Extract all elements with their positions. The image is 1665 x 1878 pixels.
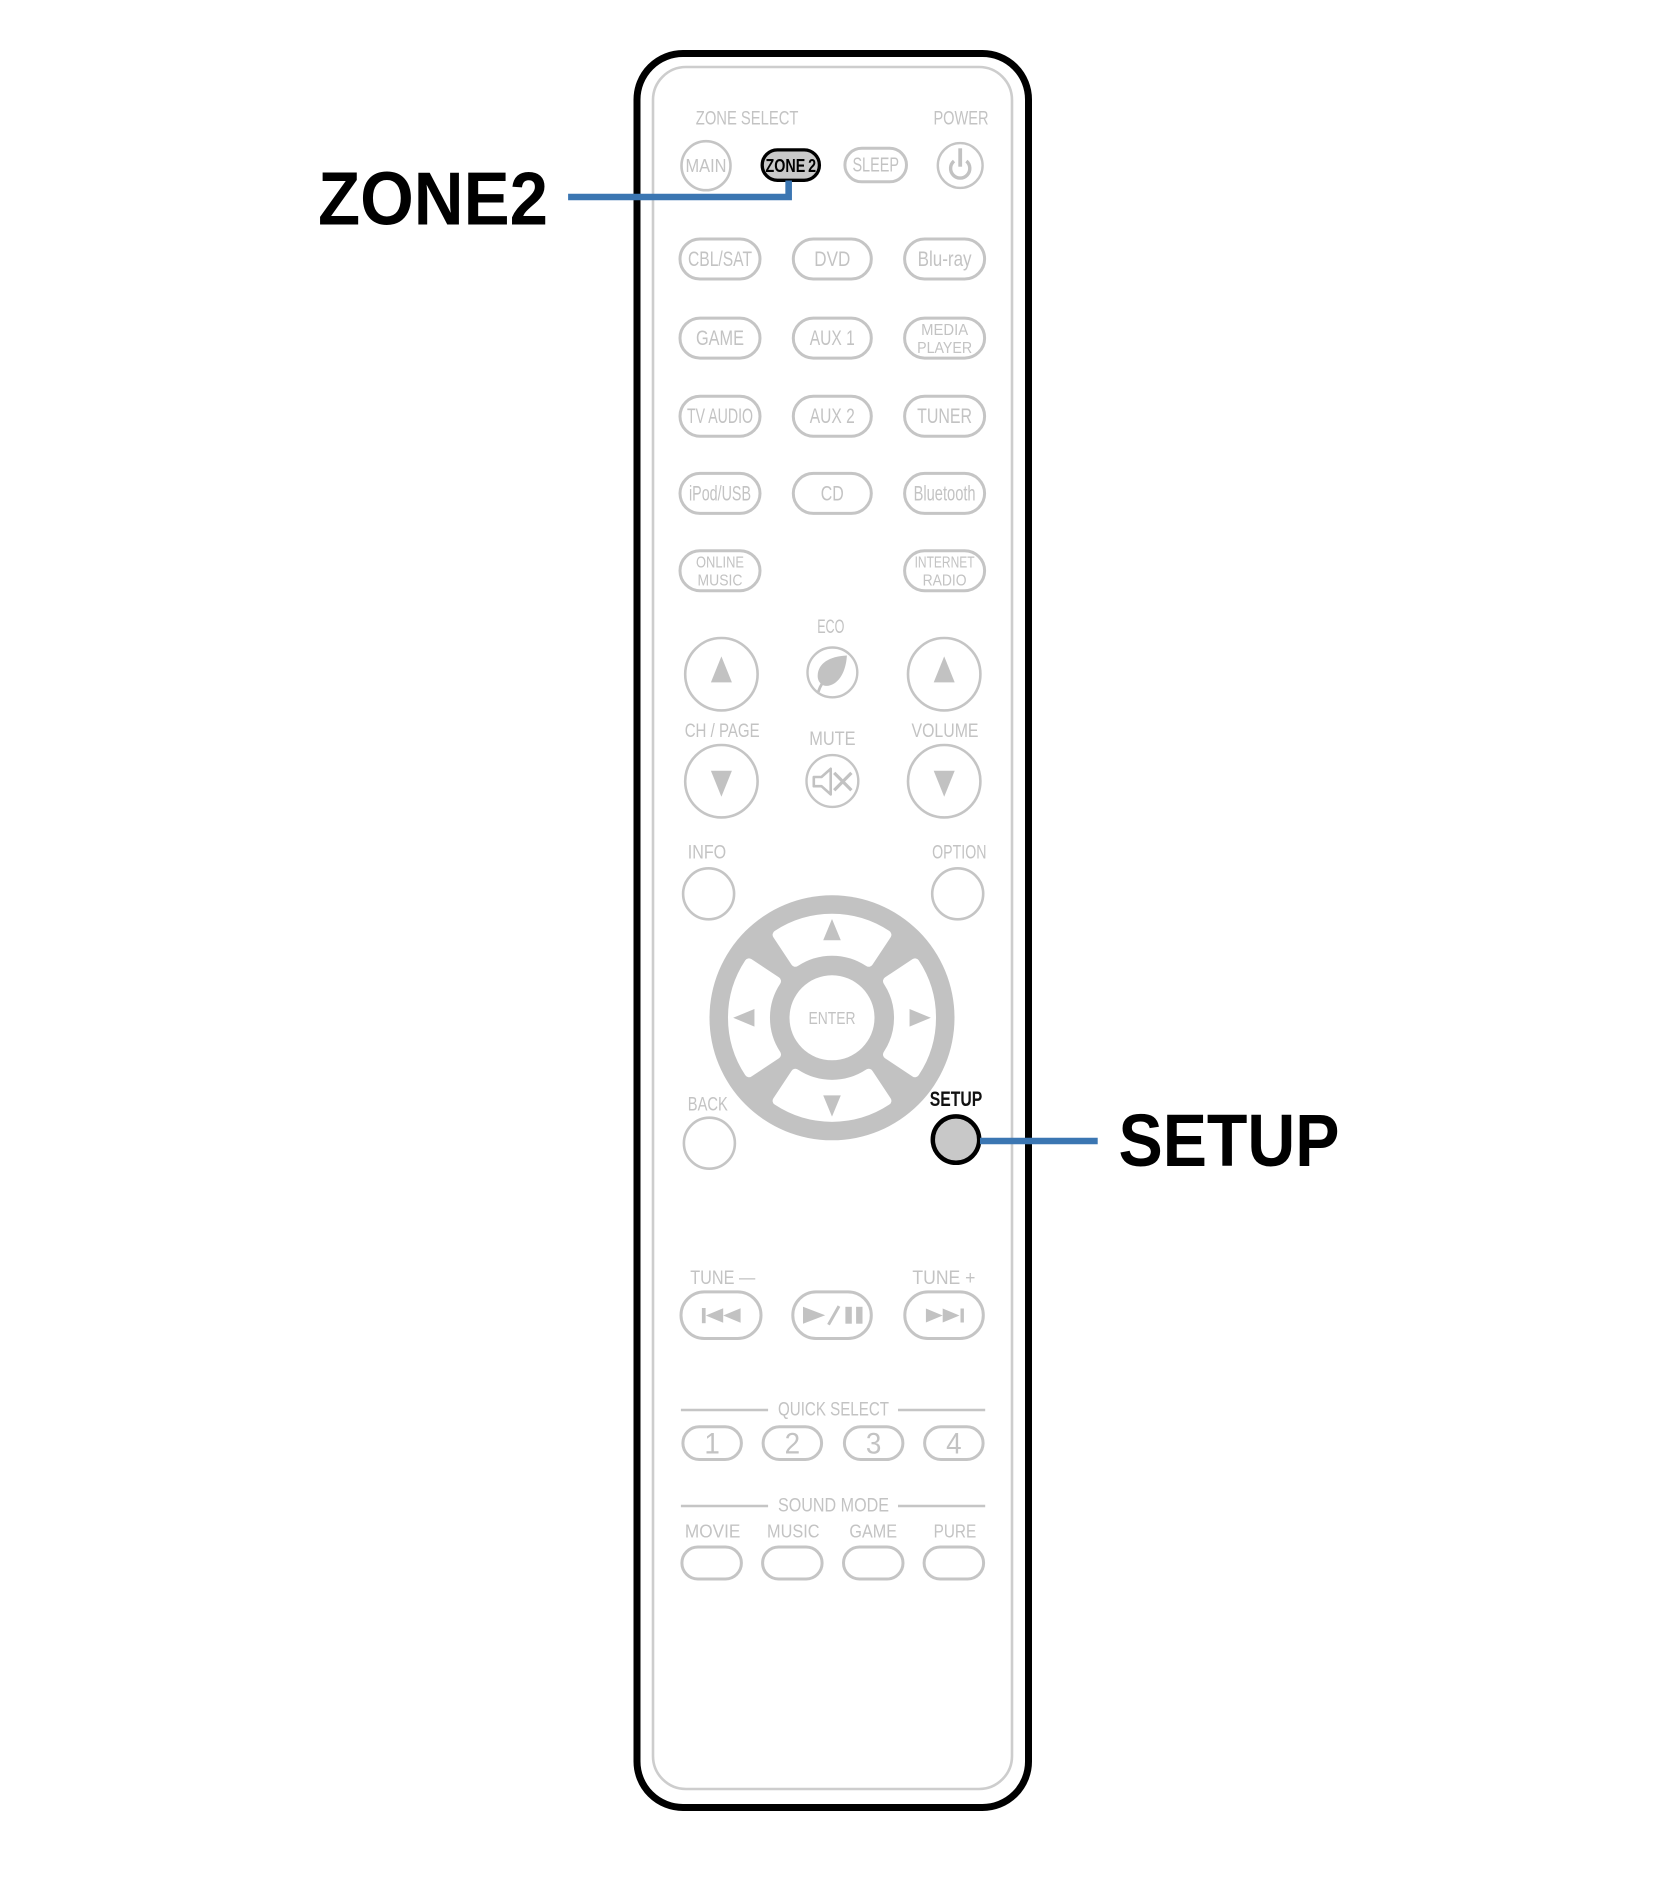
- svg-text:TUNER: TUNER: [917, 405, 972, 428]
- svg-text:MOVIE: MOVIE: [685, 1521, 741, 1542]
- svg-text:CD: CD: [821, 482, 844, 505]
- svg-text:MUSIC: MUSIC: [698, 573, 743, 590]
- svg-text:MUSIC: MUSIC: [767, 1521, 820, 1542]
- svg-text:1: 1: [704, 1428, 720, 1461]
- svg-text:ECO: ECO: [817, 616, 844, 638]
- svg-text:INTERNET: INTERNET: [915, 555, 975, 572]
- svg-text:PLAYER: PLAYER: [917, 340, 972, 357]
- svg-text:BACK: BACK: [688, 1094, 728, 1116]
- svg-text:ONLINE: ONLINE: [696, 555, 744, 572]
- svg-text:PURE: PURE: [934, 1521, 977, 1542]
- svg-text:ENTER: ENTER: [809, 1008, 856, 1028]
- svg-text:MUTE: MUTE: [809, 728, 855, 750]
- svg-text:iPod/USB: iPod/USB: [689, 482, 751, 505]
- svg-text:SETUP: SETUP: [1119, 1099, 1340, 1182]
- svg-text:INFO: INFO: [688, 842, 726, 864]
- svg-text:GAME: GAME: [696, 327, 744, 350]
- svg-text:ZONE2: ZONE2: [318, 157, 548, 241]
- svg-text:OPTION: OPTION: [932, 842, 986, 864]
- svg-text:RADIO: RADIO: [923, 573, 967, 590]
- svg-text:SLEEP: SLEEP: [852, 155, 899, 177]
- svg-text:SETUP: SETUP: [930, 1088, 983, 1111]
- svg-text:ZONE 2: ZONE 2: [766, 155, 817, 176]
- svg-text:SOUND MODE: SOUND MODE: [778, 1494, 889, 1516]
- svg-text:2: 2: [785, 1428, 801, 1461]
- svg-text:QUICK SELECT: QUICK SELECT: [778, 1398, 889, 1420]
- svg-text:TUNE +: TUNE +: [912, 1267, 975, 1289]
- svg-text:POWER: POWER: [933, 109, 988, 130]
- svg-text:AUX 2: AUX 2: [810, 405, 855, 428]
- svg-text:ZONE SELECT: ZONE SELECT: [696, 109, 799, 130]
- svg-text:VOLUME: VOLUME: [912, 720, 979, 742]
- svg-text:TUNE —: TUNE —: [690, 1267, 755, 1289]
- svg-text:3: 3: [866, 1428, 882, 1461]
- svg-text:DVD: DVD: [814, 248, 850, 271]
- svg-text:GAME: GAME: [849, 1521, 897, 1542]
- svg-text:AUX 1: AUX 1: [810, 327, 855, 350]
- svg-text:Bluetooth: Bluetooth: [914, 482, 976, 505]
- svg-text:4: 4: [946, 1428, 962, 1461]
- svg-text:CBL/SAT: CBL/SAT: [688, 248, 752, 271]
- svg-text:Blu-ray: Blu-ray: [918, 248, 972, 271]
- svg-text:CH / PAGE: CH / PAGE: [685, 720, 760, 742]
- svg-text:MAIN: MAIN: [686, 155, 727, 176]
- svg-text:TV AUDIO: TV AUDIO: [687, 405, 753, 428]
- svg-text:MEDIA: MEDIA: [921, 322, 969, 339]
